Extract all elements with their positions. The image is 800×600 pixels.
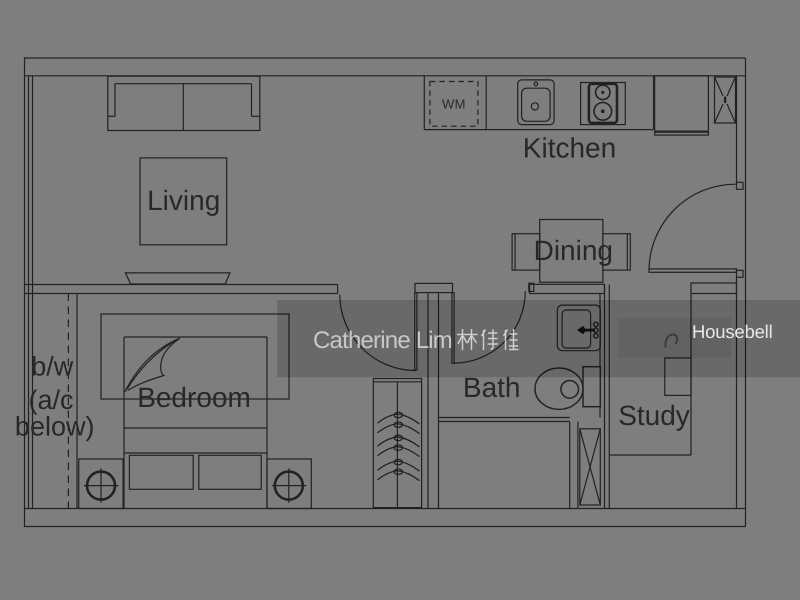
svg-text:Study: Study (618, 400, 690, 431)
svg-text:WM: WM (442, 96, 466, 111)
svg-text:b/w: b/w (31, 352, 74, 382)
svg-text:Bedroom: Bedroom (137, 382, 251, 413)
svg-text:Dining: Dining (534, 235, 613, 266)
svg-text:Catherine Lim: Catherine Lim (313, 327, 452, 354)
svg-text:Kitchen: Kitchen (523, 133, 616, 164)
svg-text:(a/c: (a/c (28, 385, 73, 415)
svg-text:below): below) (15, 412, 95, 442)
svg-text:Living: Living (147, 185, 220, 216)
svg-text:Housebell: Housebell (692, 321, 772, 342)
